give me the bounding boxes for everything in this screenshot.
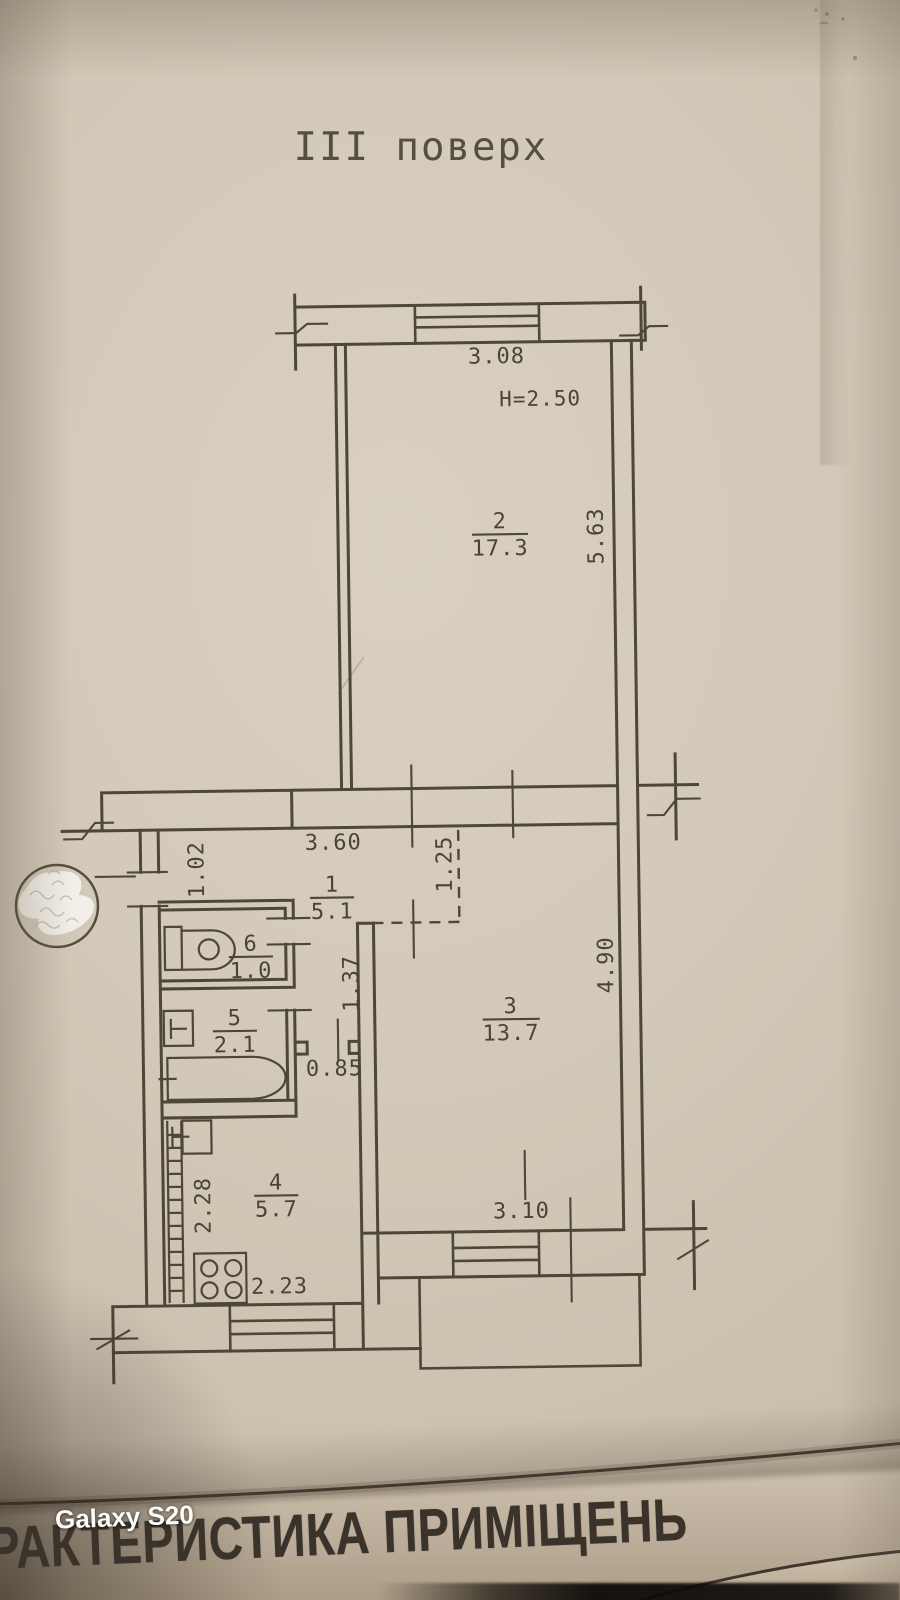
dim-kitchen-width: 2.23 — [251, 1274, 308, 1300]
room-5-number: 5 — [227, 1006, 242, 1031]
bath-sink-icon — [164, 1011, 193, 1046]
room-6-label: 6 1.0 — [229, 931, 272, 984]
floor-title: III поверх — [294, 125, 549, 170]
photographed-floor-plan-page: III поверх — [0, 0, 900, 1600]
ceiling-height-note: H=2.50 — [499, 386, 581, 411]
room-1-label: 1 5.1 — [310, 872, 353, 925]
room-3-label: 3 13.7 — [482, 994, 540, 1047]
room-1-number: 1 — [325, 873, 340, 898]
dim-nook-depth: 1.37 — [339, 955, 365, 1012]
room-2-label: 2 17.3 — [471, 509, 529, 562]
room-2-number: 2 — [493, 509, 508, 534]
dim-nook-door: 0.85 — [306, 1056, 363, 1082]
room-1-divider — [311, 897, 353, 898]
room-3-number: 3 — [503, 994, 518, 1019]
hole-punch-stamp — [11, 861, 101, 947]
camera-watermark: Galaxy S20 — [54, 1499, 194, 1535]
room-1-area: 5.1 — [311, 899, 354, 925]
room-5-divider — [214, 1031, 256, 1032]
walls — [55, 287, 708, 1384]
dim-room3-width: 3.10 — [493, 1199, 550, 1225]
room-3-divider — [484, 1019, 539, 1020]
dim-room2-width: 3.08 — [468, 344, 525, 370]
room-2-area: 17.3 — [472, 536, 529, 562]
room-5-area: 2.1 — [214, 1033, 257, 1059]
room-5-label: 5 2.1 — [213, 1006, 256, 1059]
room-4-label: 4 5.7 — [255, 1170, 298, 1223]
stove-icon — [194, 1253, 247, 1304]
window-kitchen — [230, 1304, 335, 1351]
bathtub-icon — [159, 1056, 286, 1100]
room-6-area: 1.0 — [230, 958, 273, 984]
room-4-area: 5.7 — [255, 1197, 298, 1223]
room-2-divider — [473, 534, 527, 535]
room-3-area: 13.7 — [482, 1021, 539, 1047]
room-6-divider — [230, 957, 272, 958]
dim-room3-depth: 4.90 — [594, 936, 620, 993]
floor-plan-drawing: III поверх — [0, 0, 900, 1600]
dim-entry-width: 1.02 — [184, 841, 210, 898]
window-room3 — [453, 1231, 540, 1277]
vent-shaft-hatch — [167, 1122, 184, 1302]
dim-kitchen-depth: 2.28 — [191, 1177, 217, 1234]
dim-room2-depth: 5.63 — [584, 507, 610, 564]
window-room2 — [415, 304, 540, 344]
dim-hall-width: 3.60 — [305, 830, 362, 856]
room-4-number: 4 — [269, 1170, 284, 1195]
dim-hall-opening: 1.25 — [432, 835, 458, 892]
room-4-divider — [255, 1195, 297, 1196]
room-6-number: 6 — [243, 932, 258, 957]
pencil-specks — [814, 8, 857, 60]
balcony-outline — [419, 1274, 640, 1368]
toilet-icon — [164, 926, 235, 970]
break-marks — [57, 319, 709, 1350]
